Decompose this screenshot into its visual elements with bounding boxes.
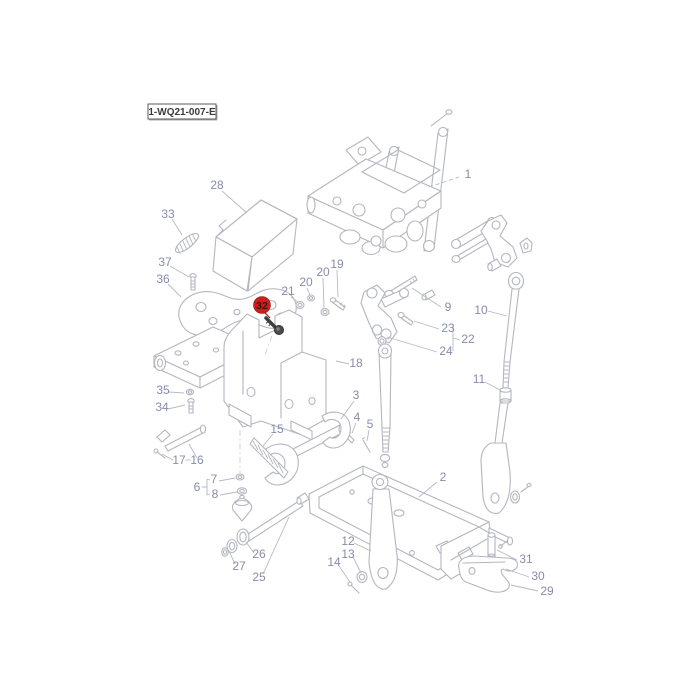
- part-label-30[interactable]: 30: [531, 569, 545, 583]
- part-label-17[interactable]: 17: [172, 453, 186, 467]
- part-label-26[interactable]: 26: [252, 547, 266, 561]
- part-label-5[interactable]: 5: [367, 417, 374, 431]
- part-label-3[interactable]: 3: [353, 388, 360, 402]
- rocker-levers-22-23-24: [361, 285, 413, 467]
- part-37-bolt: [190, 274, 196, 290]
- part-label-34[interactable]: 34: [155, 400, 169, 414]
- part-label-13[interactable]: 13: [341, 547, 355, 561]
- part-25-rod: [245, 493, 309, 541]
- part-label-28[interactable]: 28: [210, 178, 224, 192]
- part-label-21[interactable]: 21: [281, 284, 295, 298]
- diagram-code: 1-WQ21-007-E: [148, 107, 216, 118]
- parts-6-7-8: [232, 474, 251, 521]
- part-label-37[interactable]: 37: [158, 255, 172, 269]
- part-label-4[interactable]: 4: [354, 410, 361, 424]
- part-label-33[interactable]: 33: [161, 207, 175, 221]
- rings-26-27: [222, 529, 249, 556]
- diagram-code-box: 1-WQ21-007-E: [148, 104, 217, 120]
- part-label-14[interactable]: 14: [327, 555, 341, 569]
- part-label-24[interactable]: 24: [439, 344, 453, 358]
- part-label-6[interactable]: 6: [194, 480, 201, 494]
- part-label-20a[interactable]: 20: [299, 275, 313, 289]
- exploded-view-drawing: 1 2 3 4 5 6 7 8 9 10 11 12 13 14 15 16 1…: [0, 0, 700, 700]
- part-label-10[interactable]: 10: [474, 303, 488, 317]
- highlighted-part-number[interactable]: 32: [256, 300, 268, 312]
- part-label-2[interactable]: 2: [440, 470, 447, 484]
- part-label-29[interactable]: 29: [540, 584, 554, 598]
- part-label-12[interactable]: 12: [341, 534, 355, 548]
- part-label-7[interactable]: 7: [211, 472, 218, 486]
- part-label-8[interactable]: 8: [212, 487, 219, 501]
- part-label-1[interactable]: 1: [465, 167, 472, 181]
- highlighted-part-badge[interactable]: 32: [254, 297, 271, 314]
- part-label-36[interactable]: 36: [156, 272, 170, 286]
- parts-diagram-page: 1 2 3 4 5 6 7 8 9 10 11 12 13 14 15 16 1…: [0, 0, 700, 700]
- part-label-35[interactable]: 35: [156, 383, 170, 397]
- fastener-cluster-19-20-21: [296, 295, 345, 315]
- part-label-27[interactable]: 27: [232, 559, 246, 573]
- part-label-15[interactable]: 15: [270, 422, 284, 436]
- part-label-18[interactable]: 18: [349, 356, 363, 370]
- rocker-arm-group: [452, 215, 533, 271]
- part-label-16[interactable]: 16: [190, 453, 204, 467]
- part-label-9[interactable]: 9: [445, 300, 452, 314]
- part-1-main-assembly: [307, 110, 452, 255]
- part-label-25[interactable]: 25: [252, 570, 266, 584]
- part-label-11[interactable]: 11: [473, 372, 486, 386]
- parts-34-35: [186, 389, 194, 413]
- part-28-cover: [213, 200, 297, 291]
- part-label-19[interactable]: 19: [330, 257, 344, 271]
- part-10-lift-link: [481, 273, 531, 514]
- part-label-23[interactable]: 23: [441, 321, 455, 335]
- part-label-20b[interactable]: 20: [316, 265, 330, 279]
- part-33-spring: [173, 230, 201, 255]
- part-label-31[interactable]: 31: [519, 552, 533, 566]
- part-label-22[interactable]: 22: [461, 332, 475, 346]
